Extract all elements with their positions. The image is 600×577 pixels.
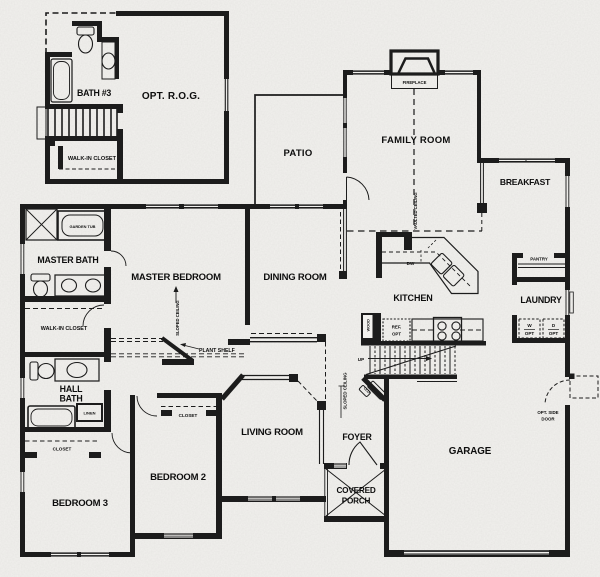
svg-text:BREAKFAST: BREAKFAST (500, 177, 551, 187)
svg-text:W: W (527, 323, 532, 328)
svg-text:FOYER: FOYER (342, 432, 372, 442)
svg-text:OPT. SIDE: OPT. SIDE (537, 410, 558, 415)
svg-text:WALK-IN CLOSET: WALK-IN CLOSET (41, 326, 88, 332)
svg-text:CLOSET: CLOSET (179, 413, 198, 418)
svg-text:OPT. R.O.G.: OPT. R.O.G. (142, 91, 200, 102)
svg-text:WALK-IN CLOSET: WALK-IN CLOSET (68, 156, 117, 162)
svg-text:PLANT SHELF: PLANT SHELF (199, 348, 235, 354)
svg-text:SLOPED CEILING: SLOPED CEILING (343, 372, 348, 410)
svg-text:SLOPED CEILING: SLOPED CEILING (175, 300, 180, 335)
svg-text:DW: DW (407, 261, 415, 266)
svg-text:BEDROOM 2: BEDROOM 2 (150, 472, 206, 483)
svg-text:KITCHEN: KITCHEN (393, 293, 432, 303)
svg-text:DOOR: DOOR (541, 417, 555, 422)
svg-text:LINEN: LINEN (84, 411, 96, 416)
svg-text:OPT: OPT (525, 331, 535, 336)
svg-text:PANTRY: PANTRY (530, 257, 548, 262)
svg-text:DINING ROOM: DINING ROOM (263, 272, 327, 283)
svg-text:WOOD: WOOD (366, 319, 370, 331)
svg-text:CLOSET: CLOSET (53, 447, 72, 452)
svg-text:PORCH: PORCH (342, 497, 371, 506)
svg-text:BATH #3: BATH #3 (77, 88, 111, 98)
svg-text:PATIO: PATIO (283, 148, 312, 159)
svg-text:LAUNDRY: LAUNDRY (520, 295, 562, 305)
svg-text:HALL: HALL (60, 384, 83, 394)
svg-text:BATH: BATH (60, 394, 83, 404)
svg-text:VAULTED CEILING: VAULTED CEILING (413, 192, 418, 229)
svg-text:MASTER BATH: MASTER BATH (37, 255, 98, 265)
svg-text:OPT: OPT (392, 332, 401, 337)
svg-text:UP: UP (358, 357, 364, 362)
svg-text:OPT: OPT (549, 331, 559, 336)
svg-text:FAMILY ROOM: FAMILY ROOM (381, 135, 450, 146)
svg-text:LIVING ROOM: LIVING ROOM (241, 427, 303, 438)
svg-text:REF.: REF. (392, 325, 402, 330)
svg-text:MASTER BEDROOM: MASTER BEDROOM (131, 272, 221, 283)
svg-text:FIREPLACE: FIREPLACE (403, 80, 427, 85)
svg-text:GARDEN TUB: GARDEN TUB (70, 224, 96, 229)
svg-text:GARAGE: GARAGE (449, 446, 492, 457)
svg-text:BEDROOM 3: BEDROOM 3 (52, 498, 108, 509)
svg-text:COVERED: COVERED (336, 486, 375, 495)
